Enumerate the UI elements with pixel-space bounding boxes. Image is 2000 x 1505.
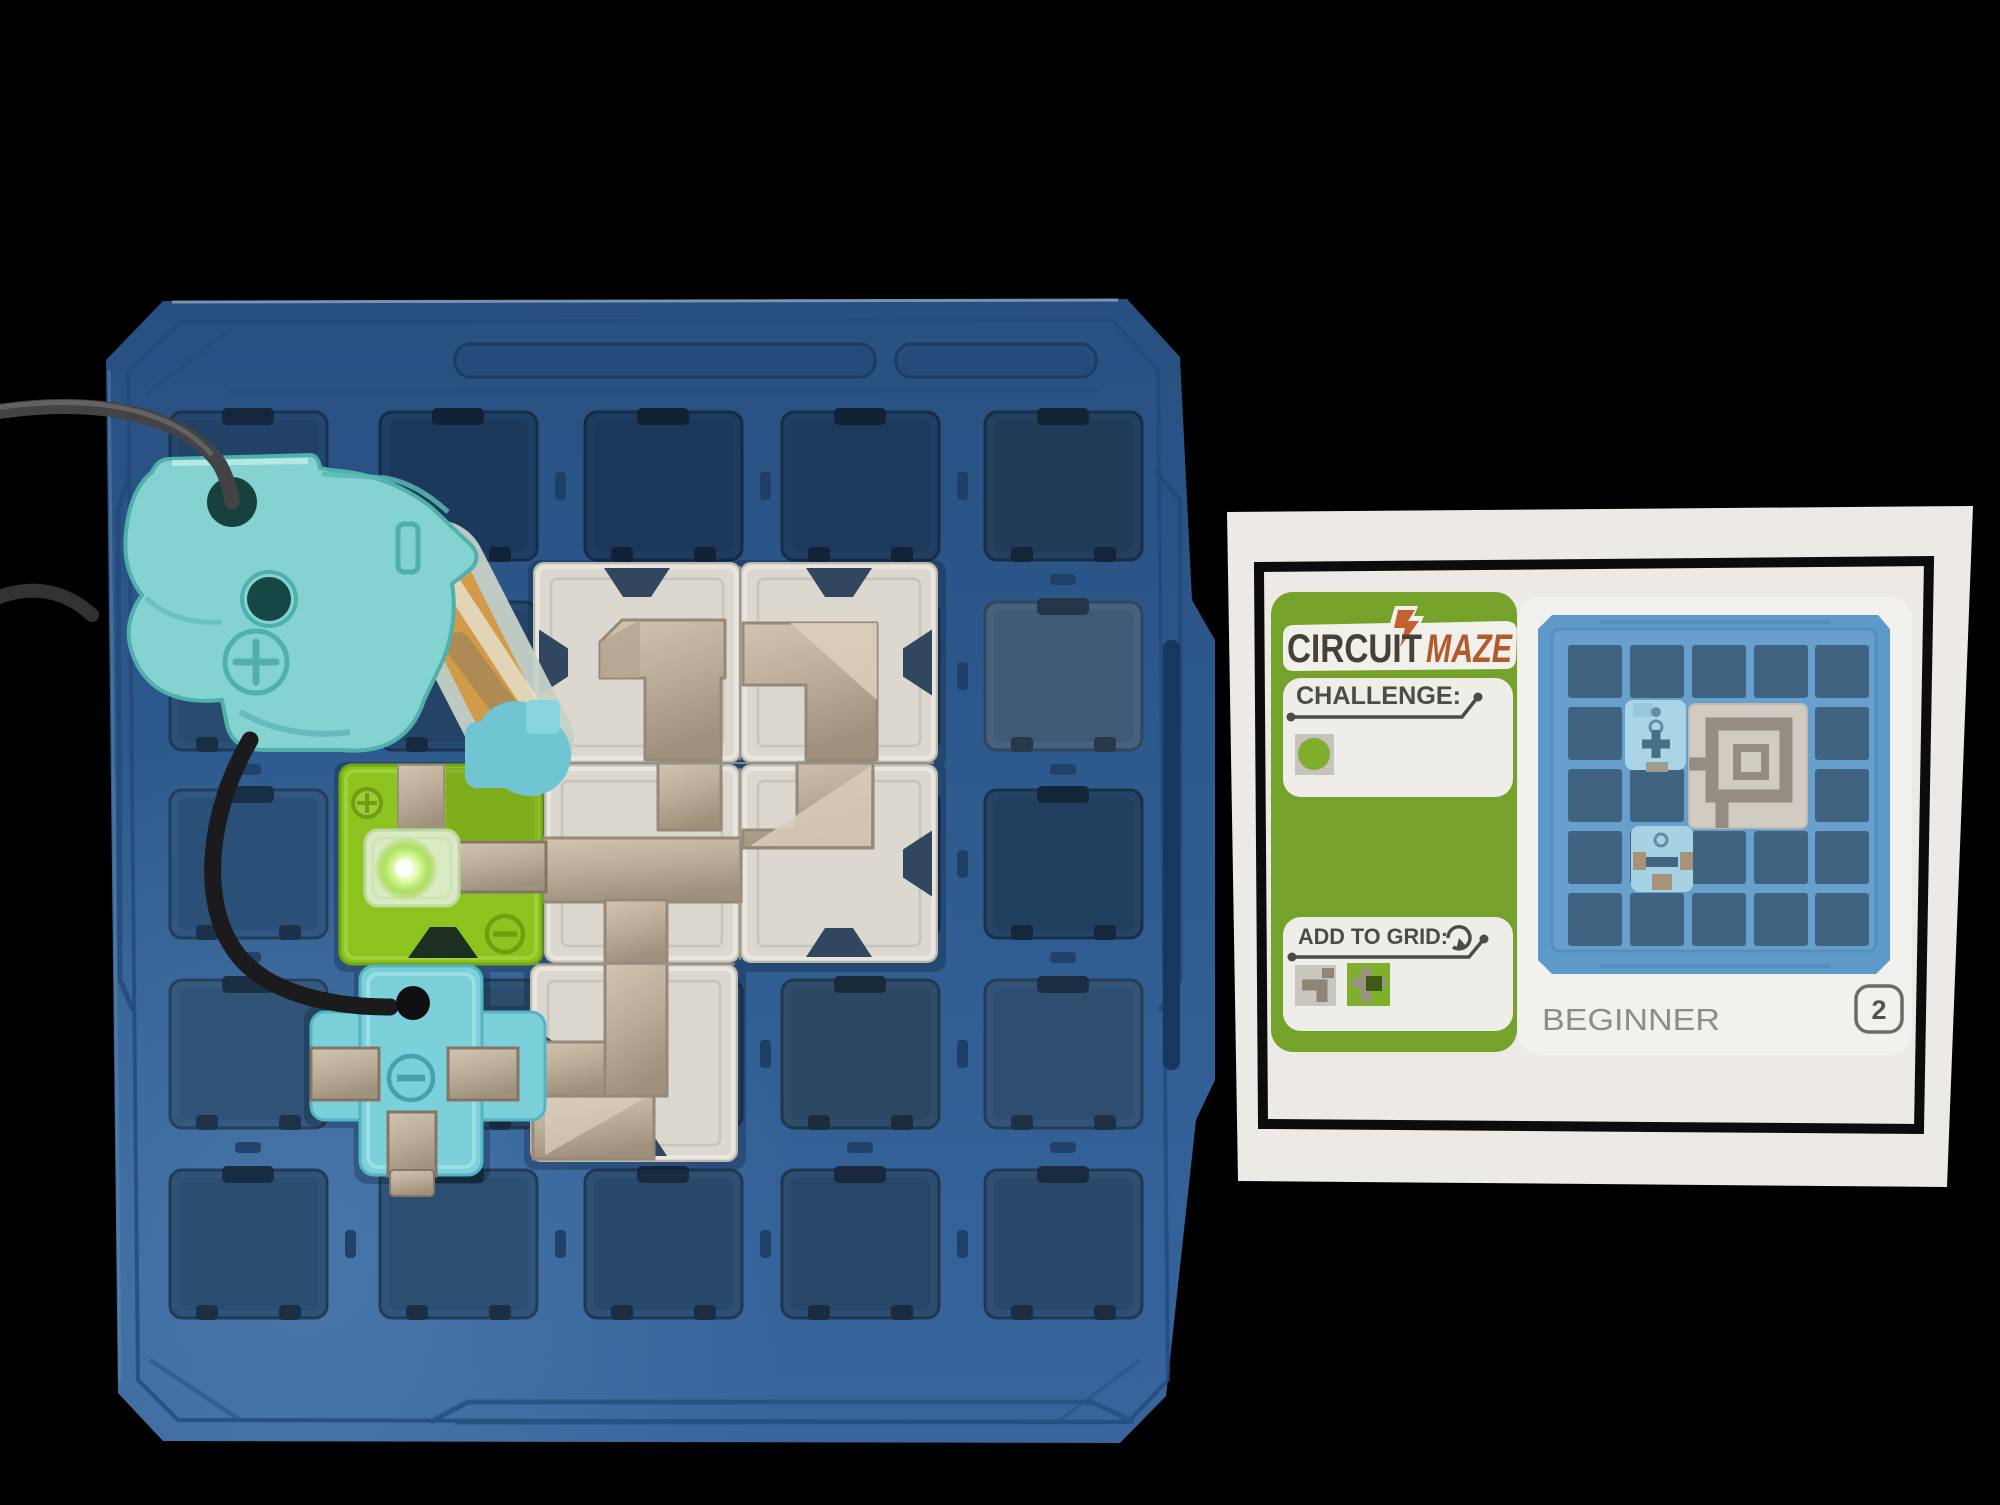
svg-text:BEGINNER: BEGINNER xyxy=(1542,1002,1720,1037)
svg-text:2: 2 xyxy=(1871,995,1886,1025)
svg-text:CIRCUIT: CIRCUIT xyxy=(1287,627,1422,671)
svg-text:MAZE: MAZE xyxy=(1426,627,1513,671)
svg-text:CHALLENGE:: CHALLENGE: xyxy=(1296,682,1461,710)
svg-text:ADD TO GRID:: ADD TO GRID: xyxy=(1298,924,1448,949)
